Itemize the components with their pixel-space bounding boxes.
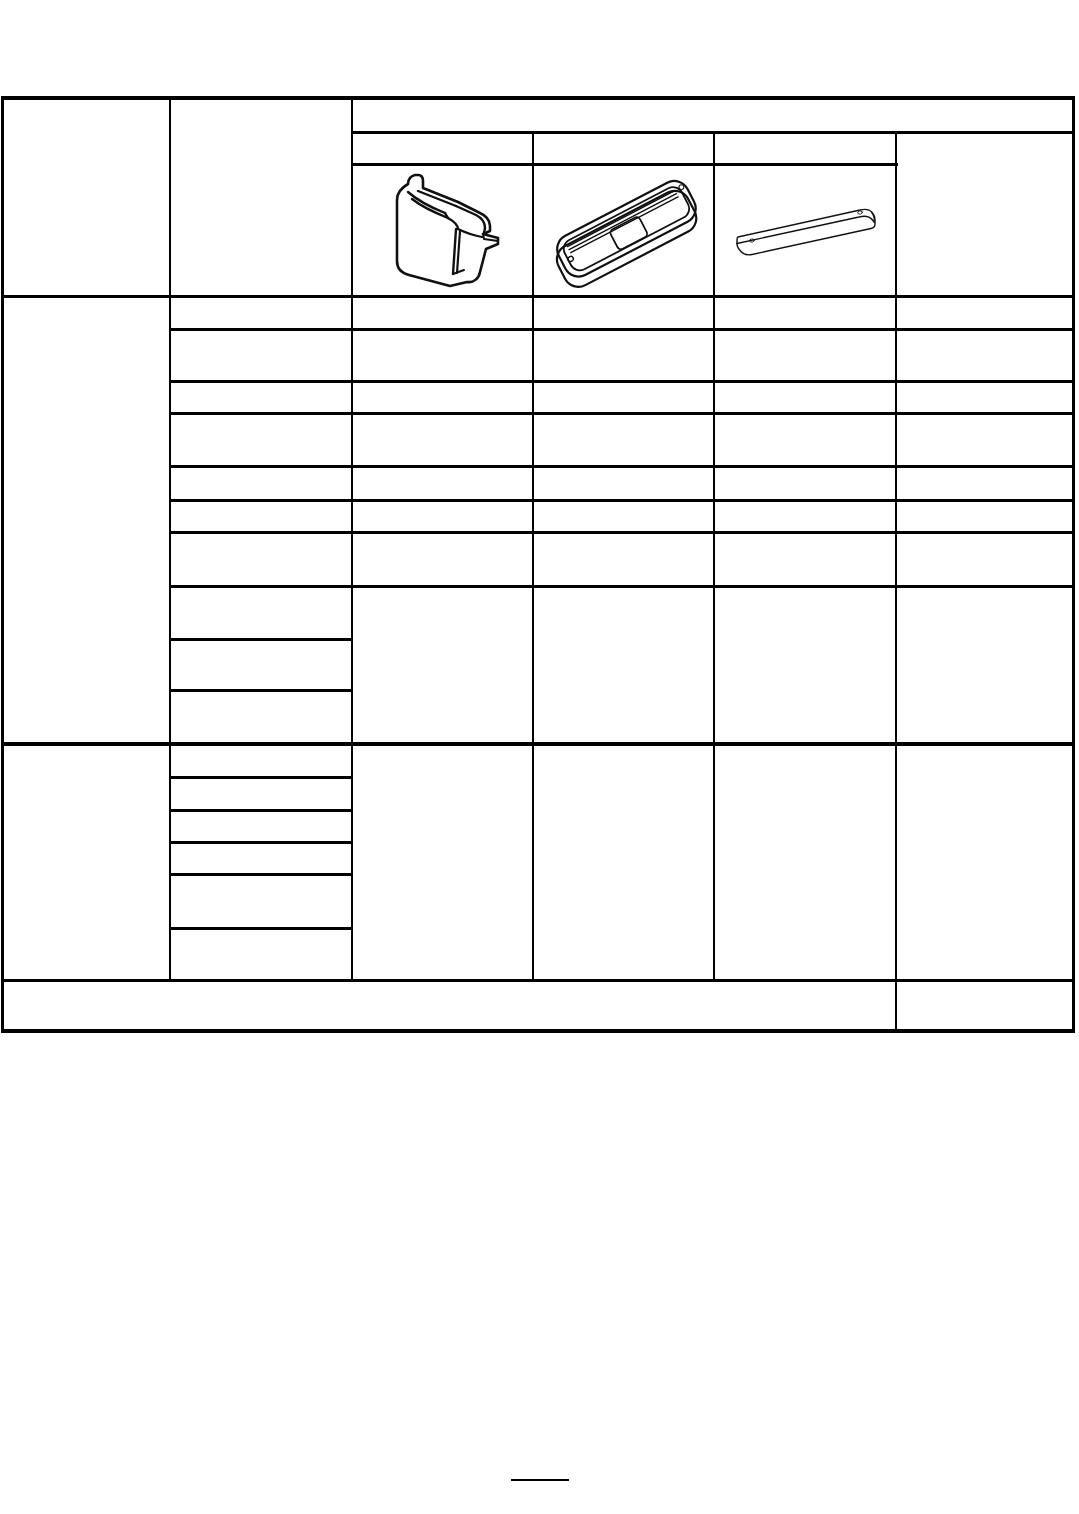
header-top-band-cell — [353, 100, 1072, 131]
header-col1-cell — [4, 100, 169, 295]
lamp-assembly-drawing — [534, 166, 713, 294]
grid-line — [169, 873, 353, 876]
header-col2-cell — [171, 100, 351, 295]
section1-col1-cell — [4, 298, 169, 742]
grid-line — [169, 465, 1075, 468]
grid-line — [169, 531, 1075, 534]
grid-line — [169, 499, 1075, 502]
grid-line — [169, 412, 1075, 415]
footer-row-right-cell — [897, 982, 1072, 1029]
page-number-underline — [511, 1479, 569, 1481]
document-page — [0, 0, 1079, 1514]
header-remarks-cell — [897, 134, 1072, 295]
grid-line — [169, 638, 353, 641]
grid-line — [169, 927, 353, 930]
grid-line — [1, 1029, 1075, 1033]
footer-row-cell — [4, 982, 895, 1029]
grid-line — [169, 689, 353, 692]
grid-line — [1072, 96, 1075, 1033]
grid-line — [169, 380, 1075, 383]
grid-line — [169, 841, 353, 844]
grid-line — [169, 809, 353, 812]
grid-line — [169, 776, 353, 779]
header-part-band-3 — [715, 134, 895, 163]
grid-line — [169, 585, 1075, 588]
grid-line — [169, 328, 1075, 331]
header-part-band-2 — [534, 134, 713, 163]
suitcase-weight-drawing — [353, 166, 532, 294]
section2-col1-cell — [4, 746, 169, 979]
mounting-plate-drawing — [715, 166, 895, 294]
header-part-band-1 — [353, 134, 532, 163]
